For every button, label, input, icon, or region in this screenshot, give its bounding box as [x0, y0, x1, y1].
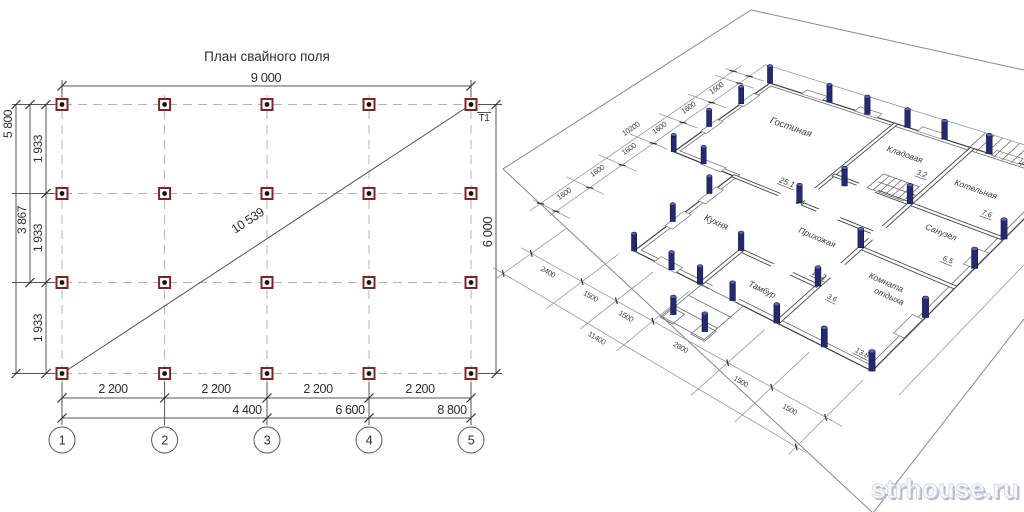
svg-text:1500: 1500	[582, 288, 600, 304]
svg-text:4 400: 4 400	[232, 403, 262, 417]
svg-text:Тамбур: Тамбур	[747, 278, 778, 300]
svg-text:6 600: 6 600	[335, 403, 365, 417]
svg-text:2800: 2800	[672, 340, 690, 356]
svg-text:1600: 1600	[650, 120, 668, 136]
svg-text:1 933: 1 933	[31, 313, 45, 342]
svg-text:Прихожая: Прихожая	[797, 225, 838, 250]
svg-text:7.6: 7.6	[980, 208, 994, 220]
svg-text:Кладовая: Кладовая	[886, 143, 925, 165]
svg-text:6.5: 6.5	[941, 254, 955, 267]
svg-text:1 933: 1 933	[31, 134, 45, 163]
svg-text:2 200: 2 200	[98, 382, 128, 396]
svg-text:2 200: 2 200	[303, 382, 333, 396]
svg-text:Санузел: Санузел	[924, 222, 959, 243]
svg-text:10 539: 10 539	[229, 205, 267, 237]
svg-text:Котельная: Котельная	[953, 177, 999, 201]
svg-text:8 800: 8 800	[437, 403, 467, 417]
svg-text:1600: 1600	[588, 163, 606, 179]
svg-text:1600: 1600	[620, 141, 638, 157]
svg-text:1500: 1500	[617, 308, 635, 324]
svg-text:Кухня: Кухня	[702, 213, 730, 233]
svg-text:3 867: 3 867	[15, 205, 29, 234]
svg-text:Гостиная: Гостиная	[769, 115, 814, 140]
svg-text:2: 2	[161, 434, 168, 448]
svg-text:3: 3	[264, 434, 271, 448]
svg-text:3.2: 3.2	[915, 168, 929, 180]
svg-text:1: 1	[59, 434, 66, 448]
svg-text:strhouse.ru: strhouse.ru	[871, 474, 1020, 504]
svg-text:4: 4	[366, 434, 373, 448]
svg-text:11400: 11400	[587, 329, 608, 346]
svg-text:1600: 1600	[679, 99, 697, 115]
svg-text:1600: 1600	[555, 186, 573, 202]
svg-text:6 000: 6 000	[480, 217, 495, 248]
svg-text:1600: 1600	[708, 80, 726, 96]
svg-text:2 200: 2 200	[405, 382, 435, 396]
svg-text:План свайного поля: План свайного поля	[204, 49, 330, 64]
svg-text:1500: 1500	[732, 374, 750, 390]
svg-text:5 800: 5 800	[1, 109, 15, 138]
svg-text:5: 5	[468, 434, 475, 448]
svg-text:1 933: 1 933	[31, 223, 45, 252]
svg-text:Т1: Т1	[479, 113, 491, 124]
svg-text:10200: 10200	[620, 119, 641, 137]
svg-text:1500: 1500	[781, 401, 799, 417]
svg-text:2 200: 2 200	[201, 382, 231, 396]
svg-text:9 000: 9 000	[251, 70, 282, 85]
